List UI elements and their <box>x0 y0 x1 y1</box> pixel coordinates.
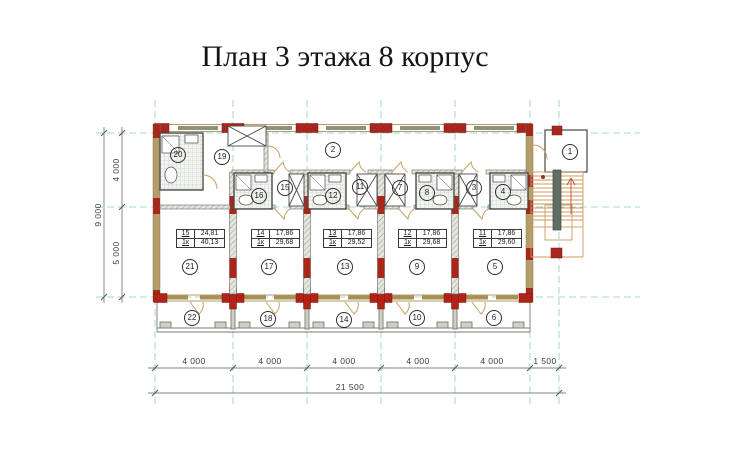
dim-bay-1: 4 000 <box>182 356 205 366</box>
drawing-sheet: План 3 этажа 8 корпус <box>0 0 742 470</box>
total-area: 29,68 <box>270 239 300 248</box>
room-label-5: 5 <box>487 259 503 275</box>
room-label-13: 13 <box>337 259 353 275</box>
vent-shaft-top <box>228 126 266 146</box>
room-label-19: 19 <box>214 149 230 165</box>
living-area: 17,86 <box>417 230 447 239</box>
room-label-18: 18 <box>260 311 276 327</box>
total-area: 29,60 <box>492 239 522 248</box>
stair-stringer <box>553 170 561 230</box>
bathroom-20 <box>160 133 217 190</box>
area-table-unit-9: 12 17,86 1к 29,68 <box>398 229 447 248</box>
total-area: 29,68 <box>417 239 447 248</box>
stair-start-marker <box>541 175 545 179</box>
unit-type: 1к <box>474 239 492 248</box>
room-label-10: 10 <box>409 310 425 326</box>
room-label-2: 2 <box>325 142 341 158</box>
room-label-8: 8 <box>419 185 435 201</box>
corridor-wall <box>232 162 526 174</box>
living-area: 17,86 <box>270 230 300 239</box>
dim-left-top: 4 000 <box>111 158 121 181</box>
unit-type: 1к <box>177 239 195 248</box>
room-label-4: 4 <box>495 184 511 200</box>
room-label-20: 20 <box>170 147 186 163</box>
dim-bay-4: 4 000 <box>406 356 429 366</box>
unit-number: 13 <box>324 230 342 239</box>
unit-number: 14 <box>252 230 270 239</box>
area-table-unit-21: 15 24,81 1к 40,13 <box>176 229 225 248</box>
left-wall <box>153 124 160 302</box>
dim-total-width: 21 500 <box>336 382 364 392</box>
right-wall <box>526 124 533 302</box>
area-table-unit-17: 14 17,86 1к 29,68 <box>251 229 300 248</box>
room-label-1: 1 <box>562 144 578 160</box>
room-label-17: 17 <box>261 259 277 275</box>
unit-number: 15 <box>177 230 195 239</box>
dim-bay-6: 1 500 <box>533 356 556 366</box>
living-area: 17,86 <box>342 230 372 239</box>
unit-number: 11 <box>474 230 492 239</box>
room-label-15: 15 <box>277 180 293 196</box>
top-wall <box>154 124 532 133</box>
dim-left-bottom: 5 000 <box>111 241 121 264</box>
room-label-7: 7 <box>392 180 408 196</box>
total-area: 29,52 <box>342 239 372 248</box>
area-table-unit-5: 11 17,86 1к 29,60 <box>473 229 522 248</box>
unit-type: 1к <box>252 239 270 248</box>
room-label-16: 16 <box>251 188 267 204</box>
unit-number: 12 <box>399 230 417 239</box>
living-area: 17,86 <box>492 230 522 239</box>
room-label-6: 6 <box>486 310 502 326</box>
room-label-9: 9 <box>409 259 425 275</box>
dim-bay-5: 4 000 <box>480 356 503 366</box>
unit-type: 1к <box>324 239 342 248</box>
dim-left-total: 9 000 <box>93 203 103 226</box>
dim-bay-2: 4 000 <box>258 356 281 366</box>
area-table-unit-13: 13 17,86 1к 29,52 <box>323 229 372 248</box>
room-label-21: 21 <box>182 259 198 275</box>
unit-type: 1к <box>399 239 417 248</box>
room-label-3: 3 <box>466 180 482 196</box>
bottom-wall <box>154 287 532 314</box>
room-label-12: 12 <box>325 188 341 204</box>
total-area: 40,13 <box>195 239 225 248</box>
living-area: 24,81 <box>195 230 225 239</box>
room-label-14: 14 <box>336 312 352 328</box>
dim-bay-3: 4 000 <box>332 356 355 366</box>
room-label-11: 11 <box>352 179 368 195</box>
room-label-22: 22 <box>184 310 200 326</box>
